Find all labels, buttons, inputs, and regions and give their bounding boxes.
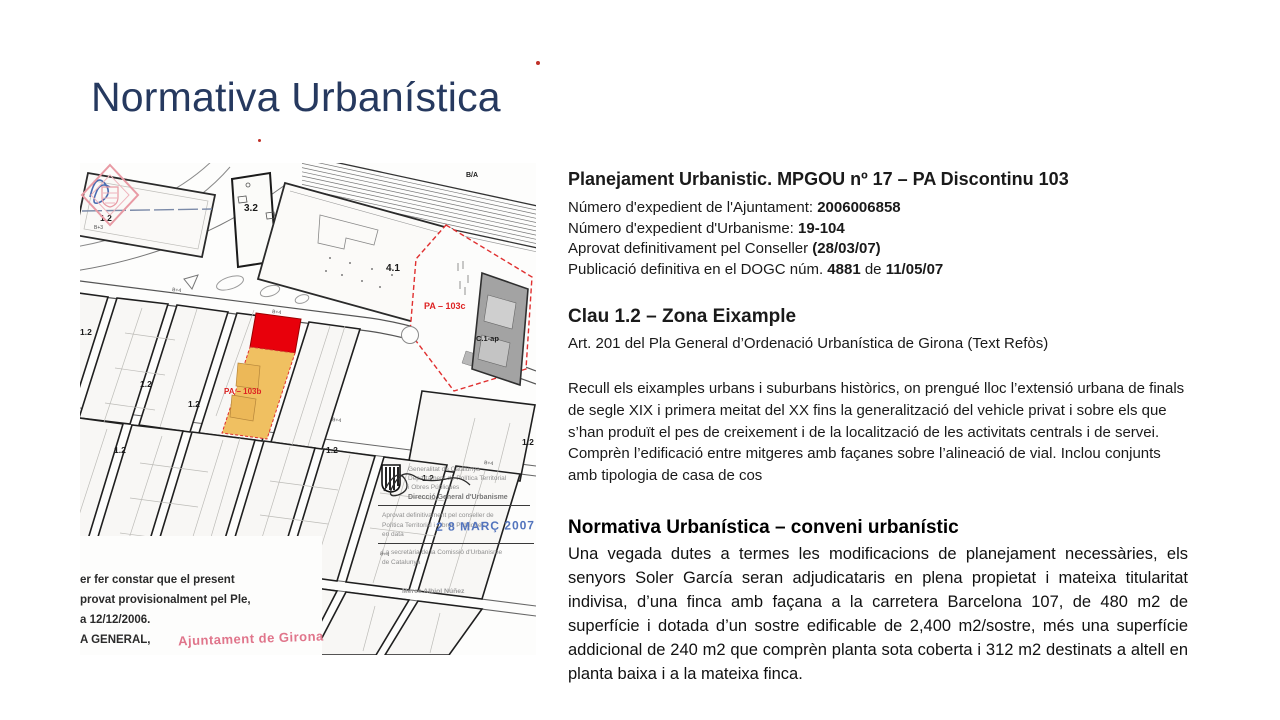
label-12: 1.2 bbox=[80, 327, 92, 337]
label-b4: B+4 bbox=[172, 287, 182, 294]
scan-artifact-dot bbox=[258, 139, 261, 142]
label-c1ap: C.1-ap bbox=[476, 334, 499, 343]
girona-stamp-icon bbox=[80, 163, 140, 227]
label-41: 4.1 bbox=[386, 263, 400, 274]
conveni-paragraph: Una vegada dutes a termes les modificaci… bbox=[568, 542, 1188, 686]
secretary-signature-icon bbox=[378, 461, 474, 501]
label-ba: B/A bbox=[466, 172, 478, 179]
label-pa103b: PA – 103b bbox=[224, 387, 261, 396]
scan-artifact-dot bbox=[536, 61, 540, 65]
label-32: 3.2 bbox=[244, 203, 258, 214]
roundabout bbox=[402, 327, 419, 344]
detail-line: Aprovat definitivament pel Conseller (28… bbox=[568, 239, 1188, 260]
label-12: 1.2 bbox=[522, 437, 534, 447]
stamp-rule bbox=[378, 543, 534, 544]
label-pa103c: PA – 103c bbox=[424, 301, 466, 311]
cadastral-map: B/A 3.2 4.1 1.2 1.2 1.2 1.2 1.2 1.2 1.2 … bbox=[80, 163, 536, 655]
page-title: Normativa Urbanística bbox=[91, 74, 651, 121]
label-b4: B+4 bbox=[332, 417, 342, 424]
label-12: 1.2 bbox=[188, 399, 200, 409]
date-stamp: 2 8 MARÇ 2007 bbox=[436, 518, 535, 534]
planejament-heading: Planejament Urbanistic. MPGOU nº 17 – PA… bbox=[568, 169, 1188, 190]
red-parcel bbox=[250, 313, 301, 353]
clau-heading: Clau 1.2 – Zona Eixample bbox=[568, 306, 1188, 328]
content-column: Planejament Urbanistic. MPGOU nº 17 – PA… bbox=[568, 169, 1188, 686]
note-line: er fer constar que el present bbox=[80, 570, 322, 590]
note-line: provat provisionalment pel Ple, bbox=[80, 590, 322, 610]
stamp-line: de Catalunya bbox=[382, 558, 502, 568]
stamp-rule bbox=[378, 505, 530, 506]
detail-line: Número d'expedient d'Urbanisme: 19-104 bbox=[568, 219, 1188, 240]
detail-line: Publicació definitiva en el DOGC núm. 48… bbox=[568, 260, 1188, 281]
clau-subheading: Art. 201 del Pla General d’Ordenació Urb… bbox=[568, 335, 1188, 352]
clau-paragraph: Recull els eixamples urbans i suburbans … bbox=[568, 378, 1188, 487]
conveni-heading: Normativa Urbanística – conveni urbaníst… bbox=[568, 517, 1188, 539]
detail-line: Número d'expedient de l'Ajuntament: 2006… bbox=[568, 198, 1188, 219]
label-12: 1.2 bbox=[326, 445, 338, 455]
note-line: a 12/12/2006. bbox=[80, 610, 322, 630]
stamp-signatory-name: Mercè Albiol Núñez bbox=[402, 588, 464, 595]
slide: Normativa Urbanística bbox=[0, 0, 1280, 720]
gray-building-c1 bbox=[472, 273, 528, 385]
label-b4: B+4 bbox=[272, 309, 282, 316]
generalitat-stamp: Generalitat de Catalunya Departament de … bbox=[378, 461, 536, 611]
label-12: 1.2 bbox=[140, 379, 152, 389]
label-12: 1.2 bbox=[114, 445, 126, 455]
stamp-line: La secretària de la Comissió d'Urbanisme bbox=[382, 548, 502, 558]
stamp-secretary-lines: La secretària de la Comissió d'Urbanisme… bbox=[382, 548, 502, 567]
